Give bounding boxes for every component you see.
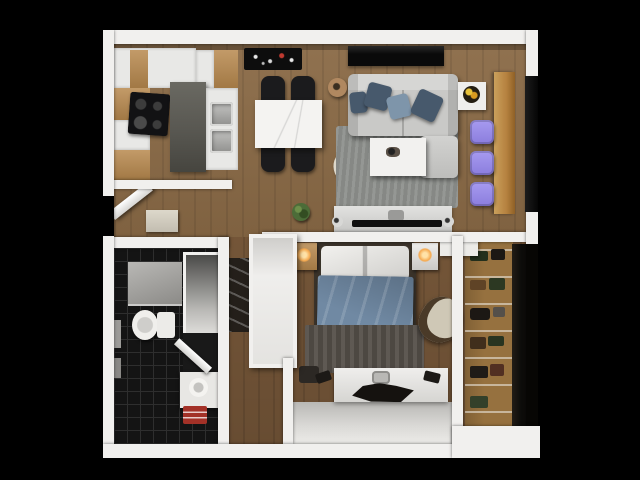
wall-stub-south <box>283 358 293 444</box>
entry-gap <box>103 196 114 236</box>
built-in-wardrobe <box>249 234 297 368</box>
wall-bottom-right <box>452 426 540 458</box>
wall-top <box>103 30 537 44</box>
wall-left <box>103 30 114 458</box>
wall-bathroom-east <box>218 237 229 444</box>
window-right <box>525 76 538 212</box>
wall-bathroom-north <box>110 237 229 248</box>
wall-closet-divider <box>452 236 463 444</box>
floor-plan: Kitchen Dining area Living room Bedroom … <box>0 0 640 480</box>
wall-bedroom-north <box>262 232 526 242</box>
window-right-lower <box>526 244 538 426</box>
wall-kitchen-entry <box>110 180 232 189</box>
shoe-cabinet <box>146 210 178 232</box>
